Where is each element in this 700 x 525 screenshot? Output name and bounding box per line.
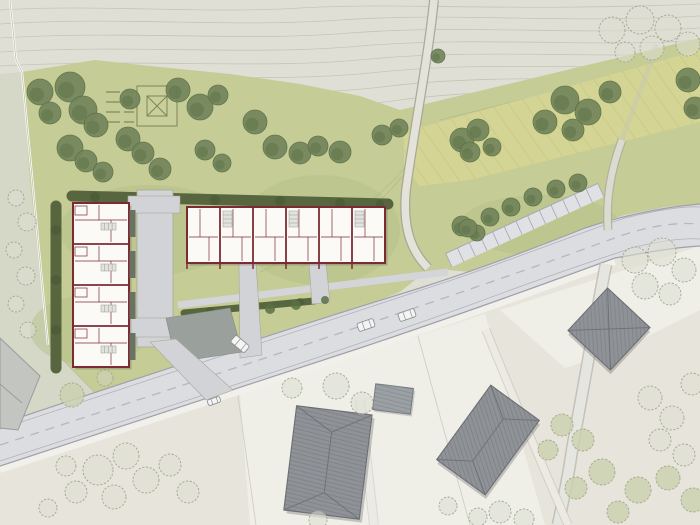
sketched-tree-icon [660, 406, 684, 430]
light-tree-icon [565, 477, 587, 499]
tree-icon [431, 49, 445, 63]
tree-icon [372, 125, 392, 145]
light-tree-icon [589, 459, 615, 485]
sketched-tree-icon [113, 443, 139, 469]
street-tree-icon [481, 208, 499, 226]
sketched-tree-icon [673, 444, 695, 466]
tree-icon [84, 113, 108, 137]
tree-icon [213, 154, 231, 172]
sketched-tree-icon [159, 454, 181, 476]
sketched-tree-icon [489, 501, 511, 523]
bush-icon [321, 296, 329, 304]
hip-roof-house-south [283, 406, 375, 523]
sketched-tree-icon [672, 258, 696, 282]
terrace-strip [130, 333, 136, 360]
light-tree-icon [97, 370, 113, 386]
tree-icon [166, 78, 190, 102]
sketched-tree-icon [102, 485, 126, 509]
tree-icon [149, 158, 171, 180]
row-west-walk-north [128, 196, 180, 213]
sketched-tree-icon [323, 373, 349, 399]
sketched-tree-icon [83, 455, 113, 485]
sketched-tree-icon [676, 32, 700, 56]
street-tree-icon [502, 198, 520, 216]
tree-icon [599, 81, 621, 103]
site-plan-canvas [0, 0, 700, 525]
tree-icon [483, 138, 501, 156]
bush-icon [291, 300, 301, 310]
sketched-tree-icon [6, 242, 22, 258]
sketched-tree-icon [659, 283, 681, 305]
housing-row-north [187, 207, 388, 269]
terrace-strip [130, 251, 136, 278]
light-tree-icon [681, 488, 700, 512]
terrace-strip [130, 210, 136, 237]
sketched-tree-icon [649, 429, 671, 451]
terrace-strip [130, 292, 136, 319]
sketched-tree-icon [17, 267, 35, 285]
sketched-tree-icon [626, 6, 654, 34]
sketched-tree-icon [65, 481, 87, 503]
light-tree-icon [656, 466, 680, 490]
tree-icon [195, 140, 215, 160]
light-tree-icon [607, 501, 629, 523]
housing-row-west [73, 203, 136, 370]
tree-icon [533, 110, 557, 134]
street-tree-icon [524, 188, 542, 206]
sketched-tree-icon [615, 42, 635, 62]
tree-icon [243, 110, 267, 134]
tree-icon [460, 142, 480, 162]
sketched-tree-icon [632, 273, 658, 299]
tree-icon [308, 136, 328, 156]
tree-icon [27, 79, 53, 105]
sketched-tree-icon [20, 322, 36, 338]
tree-icon [676, 68, 700, 92]
tree-icon [467, 119, 489, 141]
sketched-tree-icon [599, 17, 625, 43]
tree-icon [93, 162, 113, 182]
tree-icon [120, 89, 140, 109]
sketched-tree-icon [282, 378, 302, 398]
light-tree-icon [551, 414, 573, 436]
sketched-tree-icon [640, 36, 664, 60]
sketched-tree-icon [56, 456, 76, 476]
sketched-tree-icon [8, 190, 24, 206]
site-plan-drawing [0, 0, 700, 525]
sketched-tree-icon [351, 392, 373, 414]
street-tree-icon [459, 219, 477, 237]
light-tree-icon [60, 383, 84, 407]
light-tree-icon [572, 429, 594, 451]
light-tree-icon [625, 477, 651, 503]
tree-icon [329, 141, 351, 163]
sketched-tree-icon [648, 238, 676, 266]
sketched-tree-icon [8, 296, 24, 312]
street-tree-icon [569, 174, 587, 192]
sketched-tree-icon [133, 467, 159, 493]
tree-icon [263, 135, 287, 159]
light-tree-icon [538, 440, 558, 460]
tree-icon [132, 142, 154, 164]
bush-icon [265, 304, 275, 314]
sketched-tree-icon [622, 247, 648, 273]
sketched-tree-icon [638, 386, 662, 410]
sketched-tree-icon [514, 509, 534, 525]
sketched-tree-icon [439, 497, 457, 515]
sketched-tree-icon [39, 499, 57, 517]
tree-icon [562, 119, 584, 141]
sketched-tree-icon [177, 481, 199, 503]
sketched-tree-icon [655, 15, 681, 41]
sketched-tree-icon [18, 213, 36, 231]
street-tree-icon [547, 180, 565, 198]
tree-icon [390, 119, 408, 137]
flat-roof-annex-south [372, 384, 415, 417]
tree-icon [39, 102, 61, 124]
tree-icon [208, 85, 228, 105]
